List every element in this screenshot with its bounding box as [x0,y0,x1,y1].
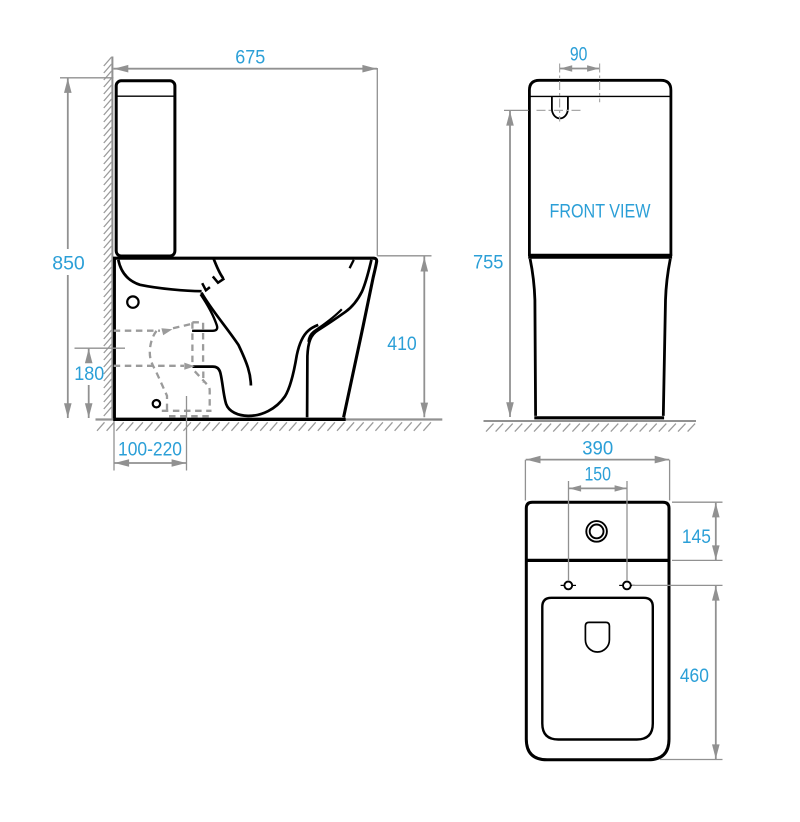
svg-text:90: 90 [570,43,588,65]
svg-text:390: 390 [582,437,613,459]
svg-text:410: 410 [387,333,417,355]
svg-text:755: 755 [473,252,504,274]
svg-text:145: 145 [682,526,711,548]
svg-text:180: 180 [74,363,104,385]
svg-text:FRONT VIEW: FRONT VIEW [550,201,651,222]
svg-text:850: 850 [52,252,85,274]
svg-text:100-220: 100-220 [118,439,182,461]
svg-text:150: 150 [584,464,611,486]
svg-text:460: 460 [680,665,709,687]
svg-text:675: 675 [235,47,265,69]
